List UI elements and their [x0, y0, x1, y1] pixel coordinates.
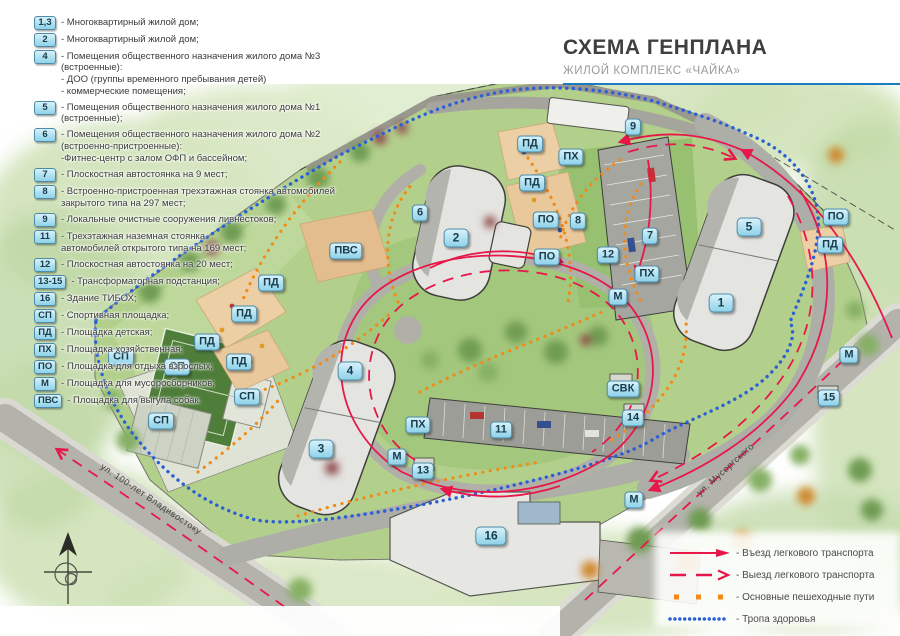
page-title: СХЕМА ГЕНПЛАНА [563, 36, 900, 60]
legend-badge: 12 [34, 258, 56, 272]
title-rule [563, 83, 900, 85]
legend-text: - Помещения общественного назначения жил… [61, 50, 374, 98]
legend-list: 1,3- Многоквартирный жилой дом;2- Многок… [34, 16, 374, 411]
routes-legend-item: - Тропа здоровья [668, 608, 893, 630]
legend-text: - Помещения общественного назначения жил… [61, 101, 374, 125]
orange-dotted-icon [668, 591, 732, 603]
legend-text: - Спортивная площадка; [61, 309, 169, 322]
legend-item: 11- Трехэтажная наземная стоянкаавтомоби… [34, 230, 374, 255]
legend-badge: 13-15 [34, 275, 66, 289]
legend-item: ПХ- Площадка хозяйственная; [34, 343, 374, 357]
legend-text: - Трехэтажная наземная стоянкаавтомобиле… [61, 230, 246, 255]
legend-badge: 16 [34, 292, 56, 306]
legend-text: - Площадка хозяйственная; [61, 343, 183, 356]
legend-text: - Помещения общественного назначения жил… [61, 128, 320, 165]
legend-item: 7- Плоскостная автостоянка на 9 мест; [34, 168, 374, 182]
legend-badge: СП [34, 309, 56, 323]
page-subtitle: ЖИЛОЙ КОМПЛЕКС «ЧАЙКА» [563, 65, 900, 77]
title-block: СХЕМА ГЕНПЛАНА ЖИЛОЙ КОМПЛЕКС «ЧАЙКА» [563, 36, 900, 85]
legend-item: 2- Многоквартирный жилой дом; [34, 33, 374, 47]
legend-text: - Площадка для мусоросборников; [61, 377, 215, 390]
legend-item: 6- Помещения общественного назначения жи… [34, 128, 374, 165]
legend-item: 13-15- Трансформаторная подстанция; [34, 275, 374, 289]
routes-legend: - Въезд легкового транспорта - Выезд лег… [668, 542, 893, 630]
legend-item: ПВС- Площадка для выгула собак. [34, 394, 374, 408]
legend-badge: 7 [34, 168, 56, 182]
legend-text: - Многоквартирный жилой дом; [61, 33, 199, 46]
legend-item: 8- Встроенно-пристроенная трехэтажная ст… [34, 185, 374, 210]
red-dashed-arrow-icon [668, 569, 732, 581]
legend-badge: 8 [34, 185, 56, 199]
legend-item: 5- Помещения общественного назначения жи… [34, 101, 374, 125]
legend-item: 1,3- Многоквартирный жилой дом; [34, 16, 374, 30]
routes-legend-item: - Основные пешеходные пути [668, 586, 893, 608]
legend-text: - Трансформаторная подстанция; [71, 275, 220, 288]
routes-legend-item: - Выезд легкового транспорта [668, 564, 893, 586]
routes-legend-label: - Въезд легкового транспорта [736, 548, 874, 559]
legend-badge: ПВС [34, 394, 62, 408]
legend-badge: ПД [34, 326, 56, 340]
legend-badge: 6 [34, 128, 56, 142]
legend-badge: 4 [34, 50, 56, 64]
legend-text: - Плоскостная автостоянка на 9 мест; [61, 168, 228, 181]
legend-item: ПО- Площадка для отдыха взрослых; [34, 360, 374, 374]
legend-text: - Здание ТИБОХ; [61, 292, 137, 305]
genplan-page: ул. 100-лет Владивостоку ул. Мусоргского… [0, 0, 900, 636]
legend-text: - Многоквартирный жилой дом; [61, 16, 199, 29]
routes-legend-label: - Основные пешеходные пути [736, 592, 874, 603]
routes-legend-item: - Въезд легкового транспорта [668, 542, 893, 564]
legend-item: 9- Локальные очистные сооружения ливнест… [34, 213, 374, 227]
legend-item: М- Площадка для мусоросборников; [34, 377, 374, 391]
legend-text: - Площадка детская; [61, 326, 152, 339]
legend-item: СП- Спортивная площадка; [34, 309, 374, 323]
building-2-annex [488, 221, 532, 270]
legend-badge: 9 [34, 213, 56, 227]
legend-badge: ПХ [34, 343, 56, 357]
legend-text: - Площадка для отдыха взрослых; [61, 360, 213, 373]
legend-item: ПД- Площадка детская; [34, 326, 374, 340]
legend-text: - Плоскостная автостоянка на 20 мест; [61, 258, 233, 271]
legend-badge: 5 [34, 101, 56, 115]
legend-text: - Встроенно-пристроенная трехэтажная сто… [61, 185, 335, 210]
legend-item: 16- Здание ТИБОХ; [34, 292, 374, 306]
red-solid-arrow-icon [668, 547, 732, 559]
blue-dotted-icon [668, 613, 732, 625]
routes-legend-label: - Выезд легкового транспорта [736, 570, 874, 581]
legend-badge: 11 [34, 230, 56, 244]
legend-badge: М [34, 377, 56, 391]
legend-badge: 1,3 [34, 16, 56, 30]
legend-text: - Локальные очистные сооружения ливнесто… [61, 213, 276, 226]
legend-badge: ПО [34, 360, 56, 374]
legend-badge: 2 [34, 33, 56, 47]
legend-text: - Площадка для выгула собак. [67, 394, 201, 407]
routes-legend-label: - Тропа здоровья [736, 614, 815, 625]
legend-item: 12- Плоскостная автостоянка на 20 мест; [34, 258, 374, 272]
legend-item: 4- Помещения общественного назначения жи… [34, 50, 374, 98]
